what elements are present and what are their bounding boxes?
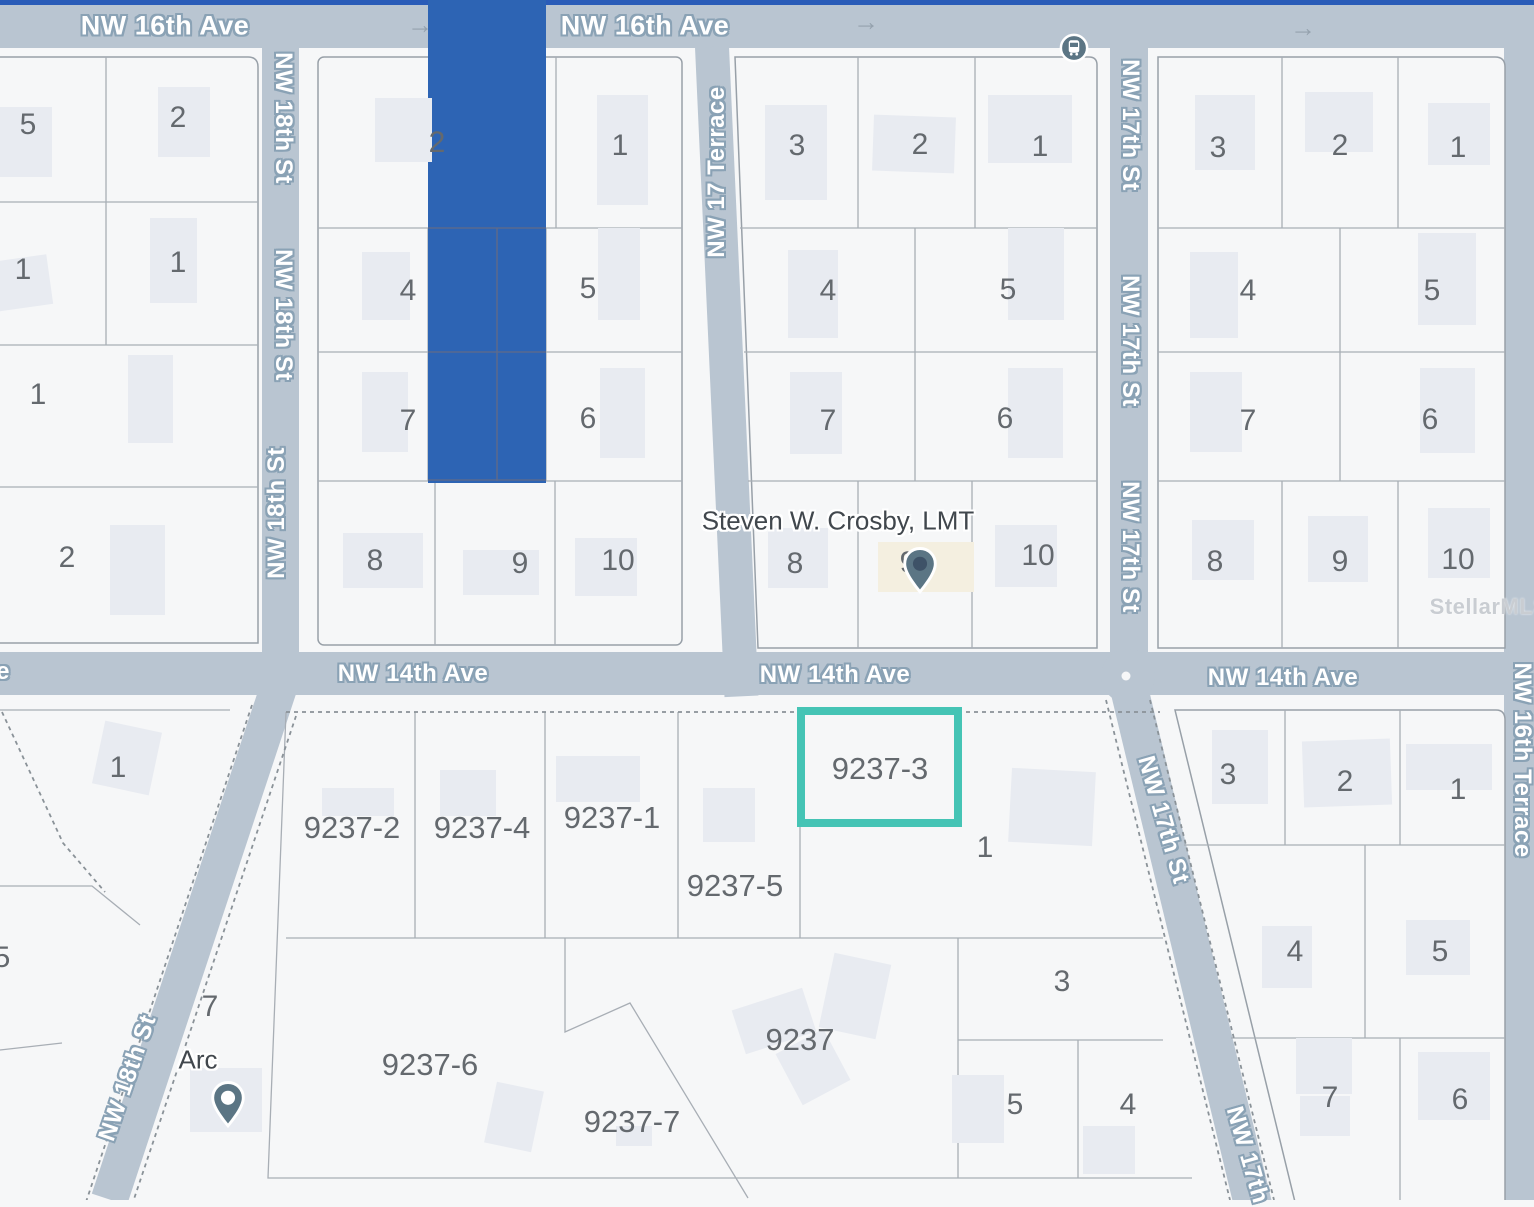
lot-number: 3 [1210, 131, 1227, 165]
lot-number: 7 [1240, 404, 1257, 438]
lot-number: 10 [1021, 539, 1054, 573]
lot-number: 2 [1332, 129, 1349, 163]
place-pin-icon[interactable] [210, 1081, 246, 1131]
lot-number: 7 [820, 404, 837, 438]
lot-number: 3 [1220, 758, 1237, 792]
parcel-label: 9237-6 [382, 1047, 479, 1083]
lot-number: 9 [1332, 545, 1349, 579]
lot-number: 2 [1337, 765, 1354, 799]
lot-number: 1 [170, 246, 187, 280]
lot-number: 1 [1032, 130, 1049, 164]
parcel-label: 9237 [766, 1022, 835, 1058]
one-way-arrow-icon: → [407, 10, 433, 41]
lot-number: 7 [202, 990, 219, 1024]
lot-number: 8 [367, 544, 384, 578]
lot-number: 1 [110, 751, 127, 785]
street-label: NW 16th Ave [81, 11, 250, 42]
lot-number: 4 [820, 274, 837, 308]
lot-number: 6 [1422, 403, 1439, 437]
street-label: NW 16th Terrace [1508, 662, 1534, 857]
street-label: e [0, 658, 10, 686]
lot-number: 5 [1432, 935, 1449, 969]
lot-number: 2 [429, 126, 446, 160]
labels-layer: NW 16th AveNW 16th AveNW 18th StNW 18th … [0, 0, 1534, 1200]
selected-parcel-9237-3[interactable] [797, 707, 962, 827]
parcel-label: 9237-2 [304, 810, 401, 846]
street-label: NW 16th Ave [561, 11, 730, 42]
parcel-map: { "map": { "watermark": {"text": "Stella… [0, 0, 1534, 1200]
street-label: NW 18th St [93, 1011, 162, 1145]
street-label: NW 17 Terrace [703, 86, 731, 257]
one-way-arrow-icon: → [853, 7, 879, 38]
lot-number: 3 [1054, 965, 1071, 999]
lot-number: 5 [1000, 273, 1017, 307]
lot-number: 5 [1424, 274, 1441, 308]
lot-number: 5 [20, 108, 37, 142]
one-way-arrow-icon: → [1290, 13, 1316, 44]
lot-number: 9 [512, 547, 529, 581]
lot-number: 6 [580, 402, 597, 436]
parcel-label: 9237-7 [584, 1104, 681, 1140]
street-label: NW 17th St [1116, 275, 1144, 407]
lot-number: 8 [787, 547, 804, 581]
lot-number: 5 [1007, 1088, 1024, 1122]
lot-number: 4 [400, 274, 417, 308]
poi-label: Steven W. Crosby, LMT [702, 506, 975, 537]
place-pin-icon[interactable] [902, 547, 938, 597]
lot-number: 6 [1452, 1083, 1469, 1117]
watermark: StellarMLS [1430, 594, 1534, 620]
lot-number: 2 [912, 128, 929, 162]
lot-number: 7 [1322, 1081, 1339, 1115]
lot-number: 1 [15, 253, 32, 287]
lot-number: 4 [1287, 935, 1304, 969]
lot-number: 10 [601, 544, 634, 578]
lot-number: 1 [977, 831, 994, 865]
street-label: NW 18th St [269, 249, 297, 381]
street-label: NW 18th St [263, 447, 291, 579]
lot-number: 4 [1120, 1088, 1137, 1122]
lot-number: 2 [170, 101, 187, 135]
street-label: NW 14th Ave [338, 660, 488, 688]
lot-number: 7 [400, 404, 417, 438]
street-label: NW 14th Ave [760, 661, 910, 689]
lot-number: 3 [789, 129, 806, 163]
lot-number: 1 [1450, 773, 1467, 807]
lot-number: 5 [0, 941, 10, 975]
lot-number: 4 [1240, 274, 1257, 308]
poi-label: Arc [179, 1045, 218, 1076]
lot-number: 1 [612, 129, 629, 163]
lot-number: 6 [997, 402, 1014, 436]
lot-number: 1 [30, 378, 47, 412]
lot-number: 5 [580, 272, 597, 306]
lot-number: 1 [1450, 131, 1467, 165]
street-label: NW 18th St [269, 52, 297, 184]
lot-number: 2 [59, 541, 76, 575]
lot-number: 8 [1207, 545, 1224, 579]
lot-number: 10 [1441, 543, 1474, 577]
parcel-label: 9237-5 [687, 868, 784, 904]
parcel-label: 9237-1 [564, 800, 661, 836]
parcel-label: 9237-4 [434, 810, 531, 846]
street-label: NW 17th St [1116, 59, 1144, 191]
street-label: NW 14th Ave [1208, 664, 1358, 692]
street-label: NW 17th St [1116, 481, 1144, 613]
street-label: NW 17th St [1131, 753, 1194, 887]
street-label: NW 17th [1220, 1103, 1274, 1206]
bus-stop-icon[interactable] [1059, 33, 1089, 63]
